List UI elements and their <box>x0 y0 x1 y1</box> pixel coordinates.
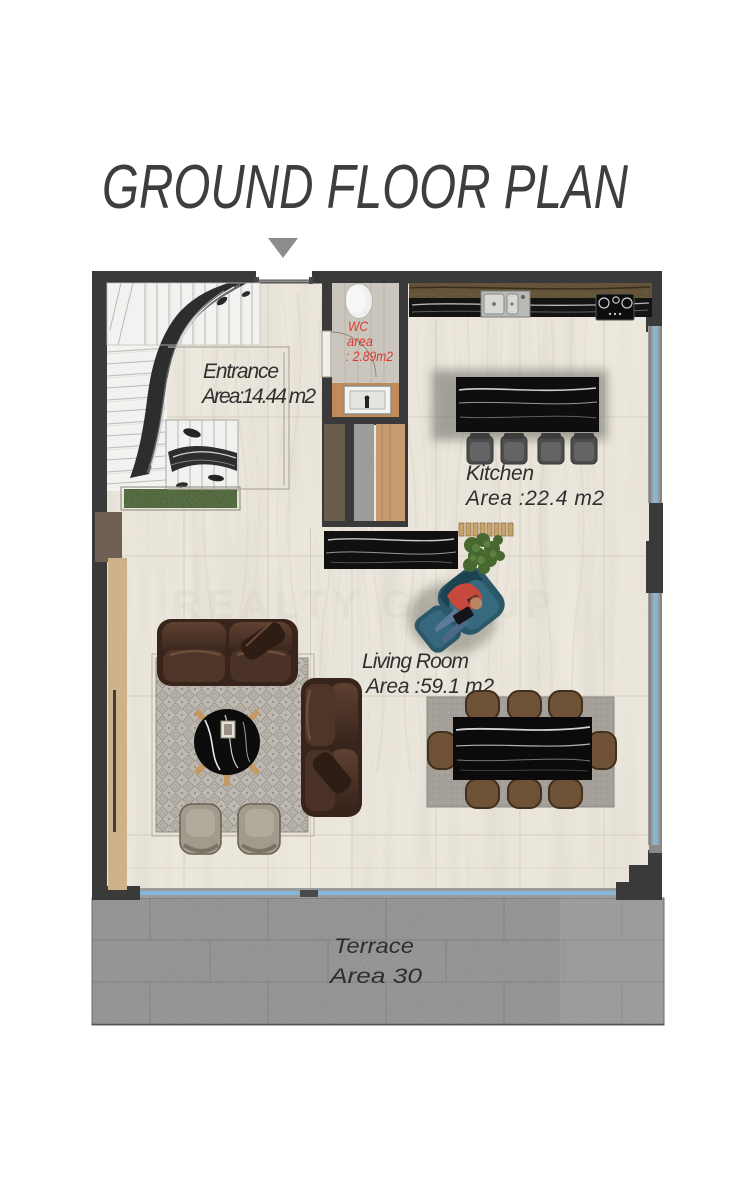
svg-text:GROUND FLOOR PLAN: GROUND FLOOR PLAN <box>102 153 628 222</box>
svg-text:Entrance: Entrance <box>203 360 279 383</box>
svg-text:: 2.89m2: : 2.89m2 <box>346 348 393 364</box>
svg-text:Area:14.44 m2: Area:14.44 m2 <box>200 385 316 408</box>
svg-text:Kitchen: Kitchen <box>466 462 534 485</box>
svg-text:Terrace: Terrace <box>334 935 414 958</box>
svg-text:WC: WC <box>348 318 369 334</box>
svg-text:area: area <box>347 333 373 349</box>
svg-text:Area 30: Area 30 <box>327 965 422 988</box>
svg-text:Area :22.4 m2: Area :22.4 m2 <box>464 487 604 510</box>
